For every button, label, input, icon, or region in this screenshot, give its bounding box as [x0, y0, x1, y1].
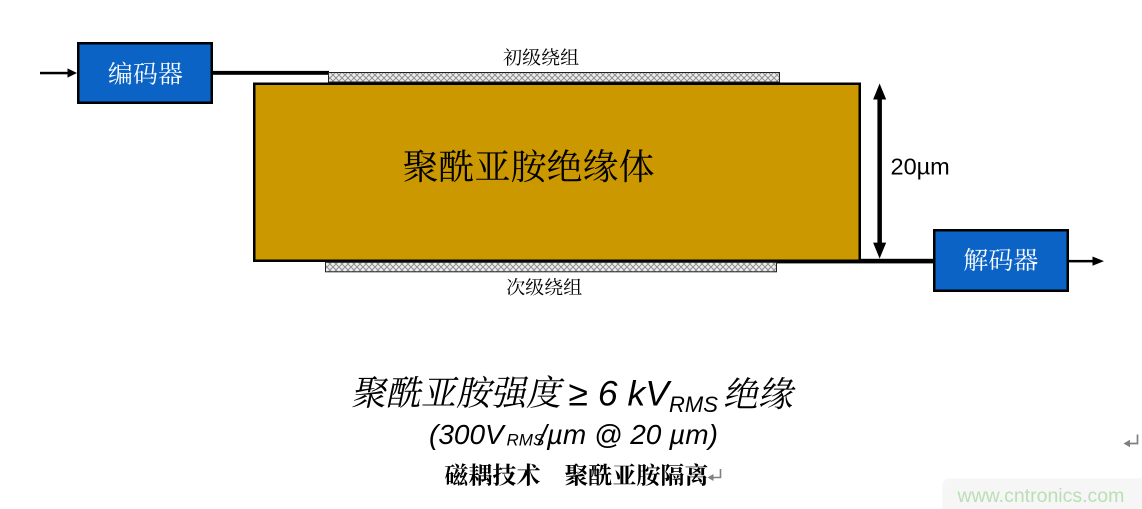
svg-text:20µm: 20µm [891, 153, 950, 179]
svg-text:www.cntronics.com: www.cntronics.com [957, 485, 1125, 507]
svg-text:RMS: RMS [669, 392, 718, 417]
svg-text:/µm @ 20 µm): /µm @ 20 µm) [537, 419, 718, 450]
svg-text:≥ 6 kV: ≥ 6 kV [569, 374, 673, 414]
svg-text:(300V: (300V [429, 419, 506, 450]
